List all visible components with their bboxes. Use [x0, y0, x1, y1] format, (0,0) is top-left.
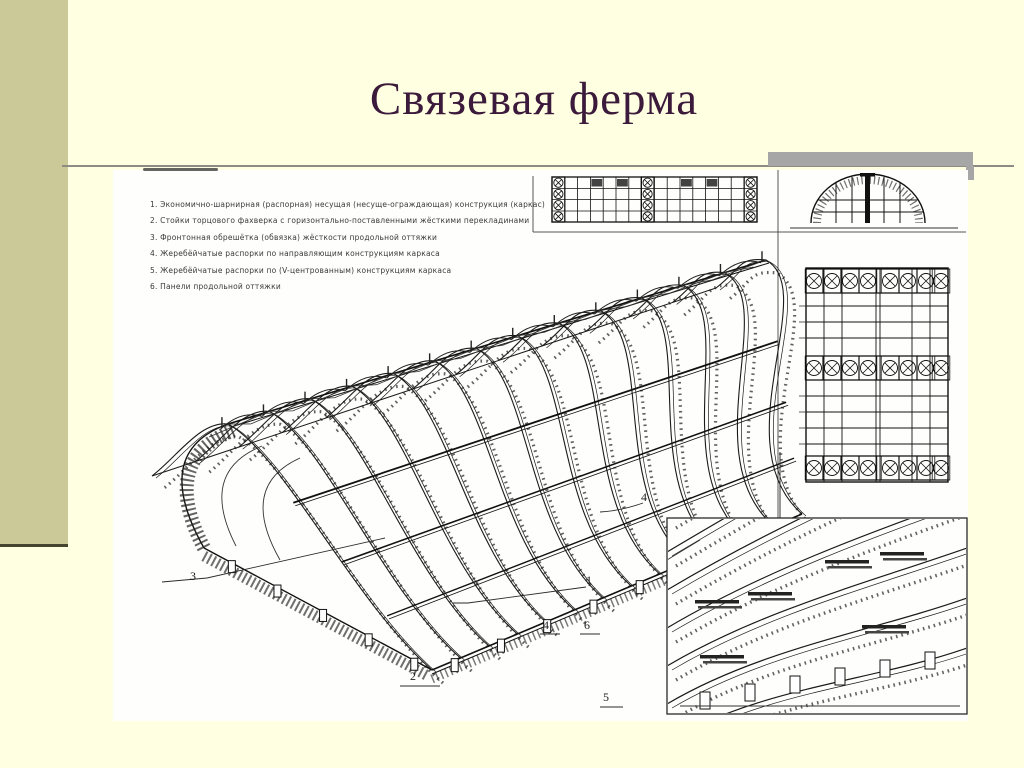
scan-artifact-mark: [143, 168, 218, 171]
legend-item: 1. Экономично-шарнирная (распорная) несу…: [150, 197, 540, 213]
legend-item: 6. Панели продольной оттяжки: [150, 279, 540, 295]
figure-shadow-bar: [768, 152, 973, 166]
callout-label: 5: [603, 690, 609, 705]
figure-legend: 1. Экономично-шарнирная (распорная) несу…: [150, 197, 540, 295]
callout-label: 6: [584, 618, 590, 633]
legend-item: 4. Жеребёйчатые распорки по направляющим…: [150, 246, 540, 262]
callout-label: 2: [410, 669, 416, 684]
legend-item: 5. Жеребёйчатые распорки по (V-центрован…: [150, 263, 540, 279]
callout-label: 3: [190, 569, 196, 584]
callout-label: 4: [543, 618, 549, 633]
slide: Связевая ферма: [0, 0, 1024, 768]
legend-item: 2. Стойки торцового фахверка с горизонта…: [150, 213, 540, 229]
slide-title: Связевая ферма: [22, 72, 1024, 126]
legend-item: 3. Фронтонная обрешётка (обвязка) жёстко…: [150, 230, 540, 246]
callout-label: 4: [641, 490, 647, 505]
callout-label: 1: [586, 573, 592, 588]
